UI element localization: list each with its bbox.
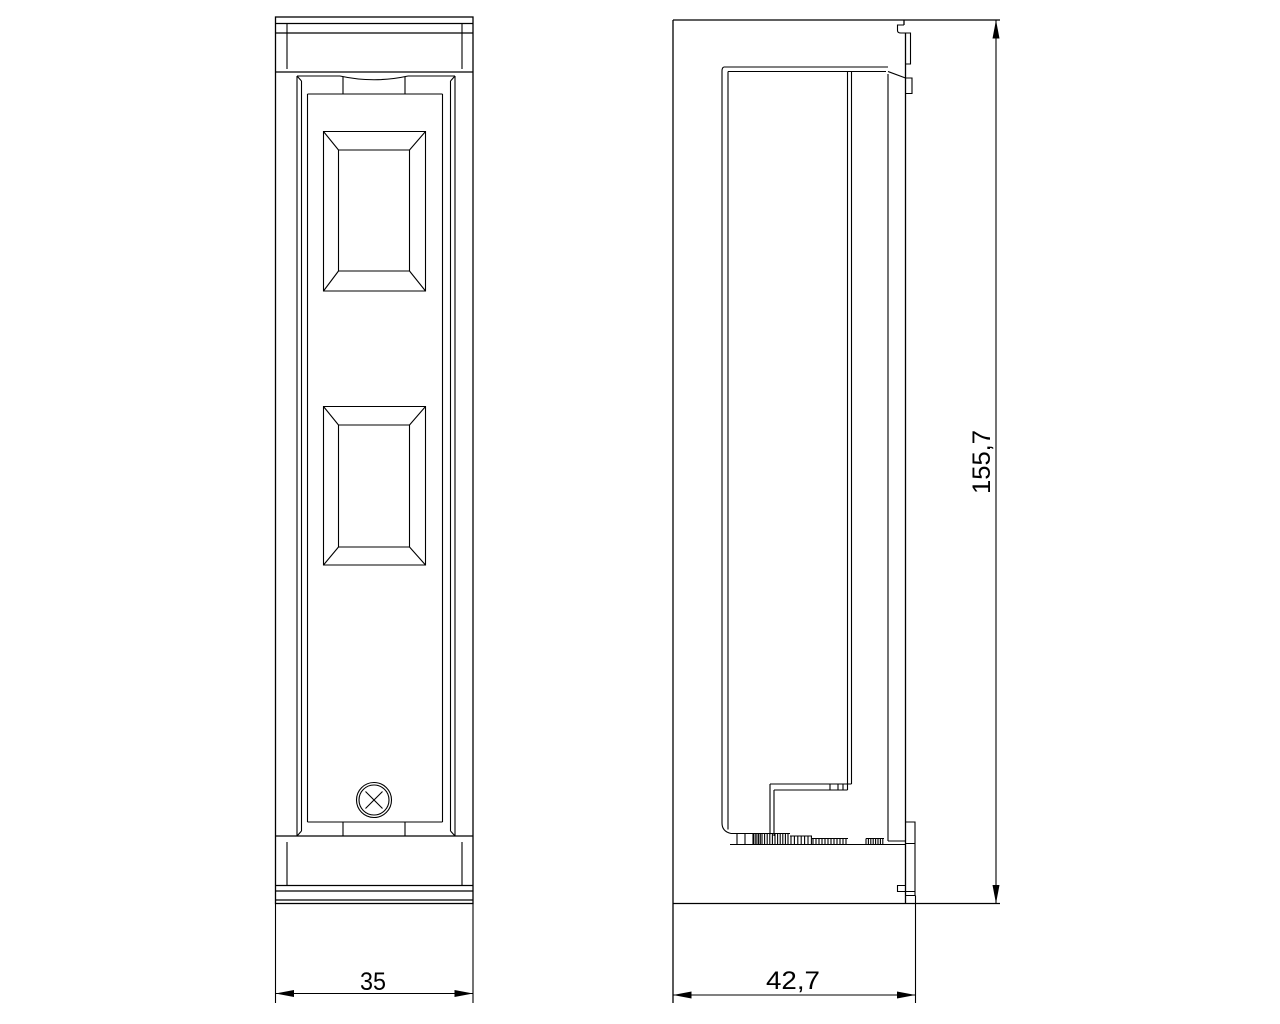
arrowhead-right — [455, 990, 474, 997]
front-screw — [357, 783, 392, 818]
side-view — [673, 20, 1000, 1003]
arrowhead-left — [276, 990, 295, 997]
side-serration — [730, 834, 906, 845]
screw-cross-icon — [366, 792, 383, 809]
side-inner-top-edge — [724, 67, 912, 94]
window-inner-edge — [339, 425, 410, 547]
side-bottom-step — [770, 784, 852, 836]
front-window-upper — [324, 132, 426, 292]
side-body-left-edge — [722, 67, 731, 834]
front-panel — [308, 77, 443, 836]
arrowhead-left — [673, 992, 692, 999]
front-cap-lines — [276, 24, 474, 901]
side-din-clip-top — [898, 25, 911, 64]
front-cap-ticks — [287, 24, 462, 886]
side-height-dim-label: 155,7 — [968, 430, 996, 494]
front-width-dim-label: 35 — [360, 968, 386, 996]
technical-drawing: 35 42,7 155,7 — [0, 0, 1280, 1024]
front-view — [276, 17, 474, 1003]
serration-profile — [730, 834, 906, 845]
side-internal-verticals — [848, 72, 906, 842]
front-width-dimension: 35 — [276, 968, 474, 997]
drawing-canvas: 35 42,7 155,7 — [0, 0, 1280, 1024]
arrowhead-bottom — [993, 885, 1000, 904]
side-din-clip-bottom — [898, 822, 916, 896]
front-window-lower — [324, 407, 426, 566]
side-width-dimension: 42,7 — [673, 967, 916, 999]
front-inner-frame — [297, 76, 455, 836]
window-inner-edge — [339, 150, 410, 271]
arrowhead-right — [897, 992, 916, 999]
side-height-dimension: 155,7 — [968, 20, 1000, 904]
serration-ticks — [737, 834, 883, 845]
arrowhead-top — [993, 20, 1000, 39]
side-width-dim-label: 42,7 — [766, 967, 820, 995]
